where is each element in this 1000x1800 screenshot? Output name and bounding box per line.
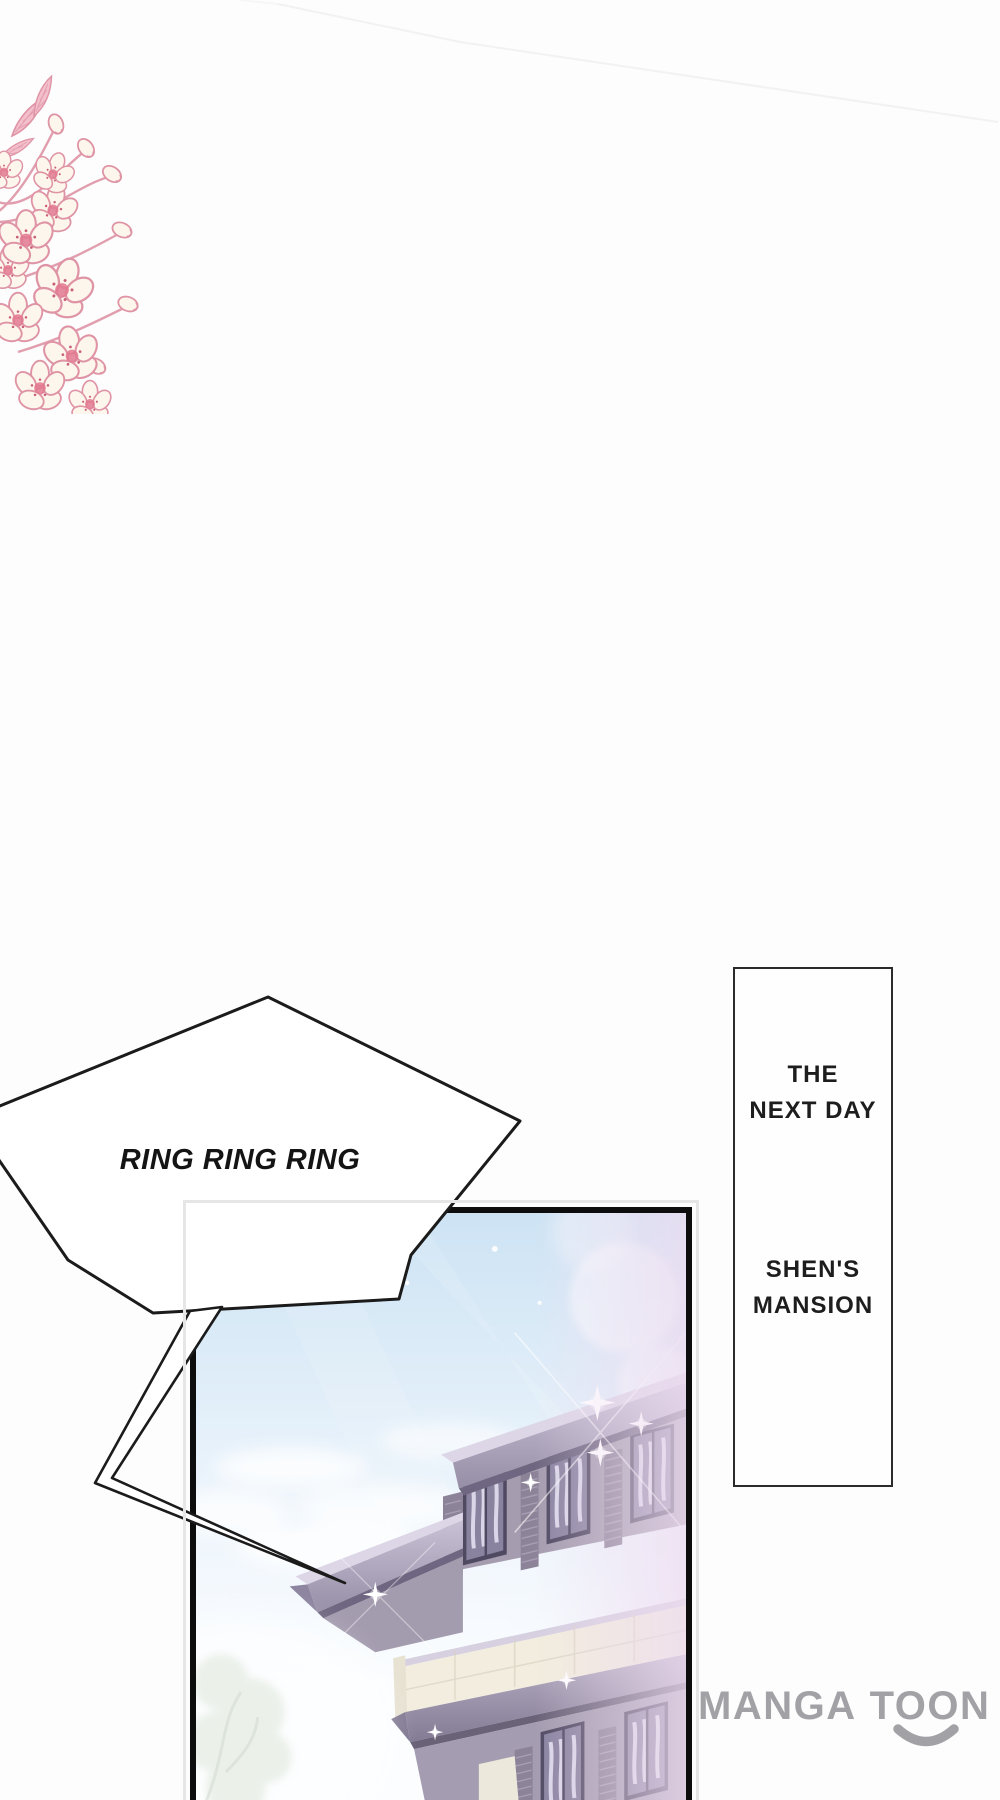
sfx-text: RING RING RING xyxy=(110,1134,370,1186)
watermark-text: MANGA xyxy=(698,1684,857,1728)
watermark-text: TOON xyxy=(870,1684,991,1728)
mangatoon-watermark: MANGATOON xyxy=(698,1684,990,1729)
speech-bubble xyxy=(0,0,1000,1800)
watermark-smile-icon xyxy=(892,1724,960,1754)
manga-page: RING RING RING THE NEXT DAY SHEN'S MANSI… xyxy=(0,0,1000,1800)
speech-bubble-tail xyxy=(95,1307,345,1583)
